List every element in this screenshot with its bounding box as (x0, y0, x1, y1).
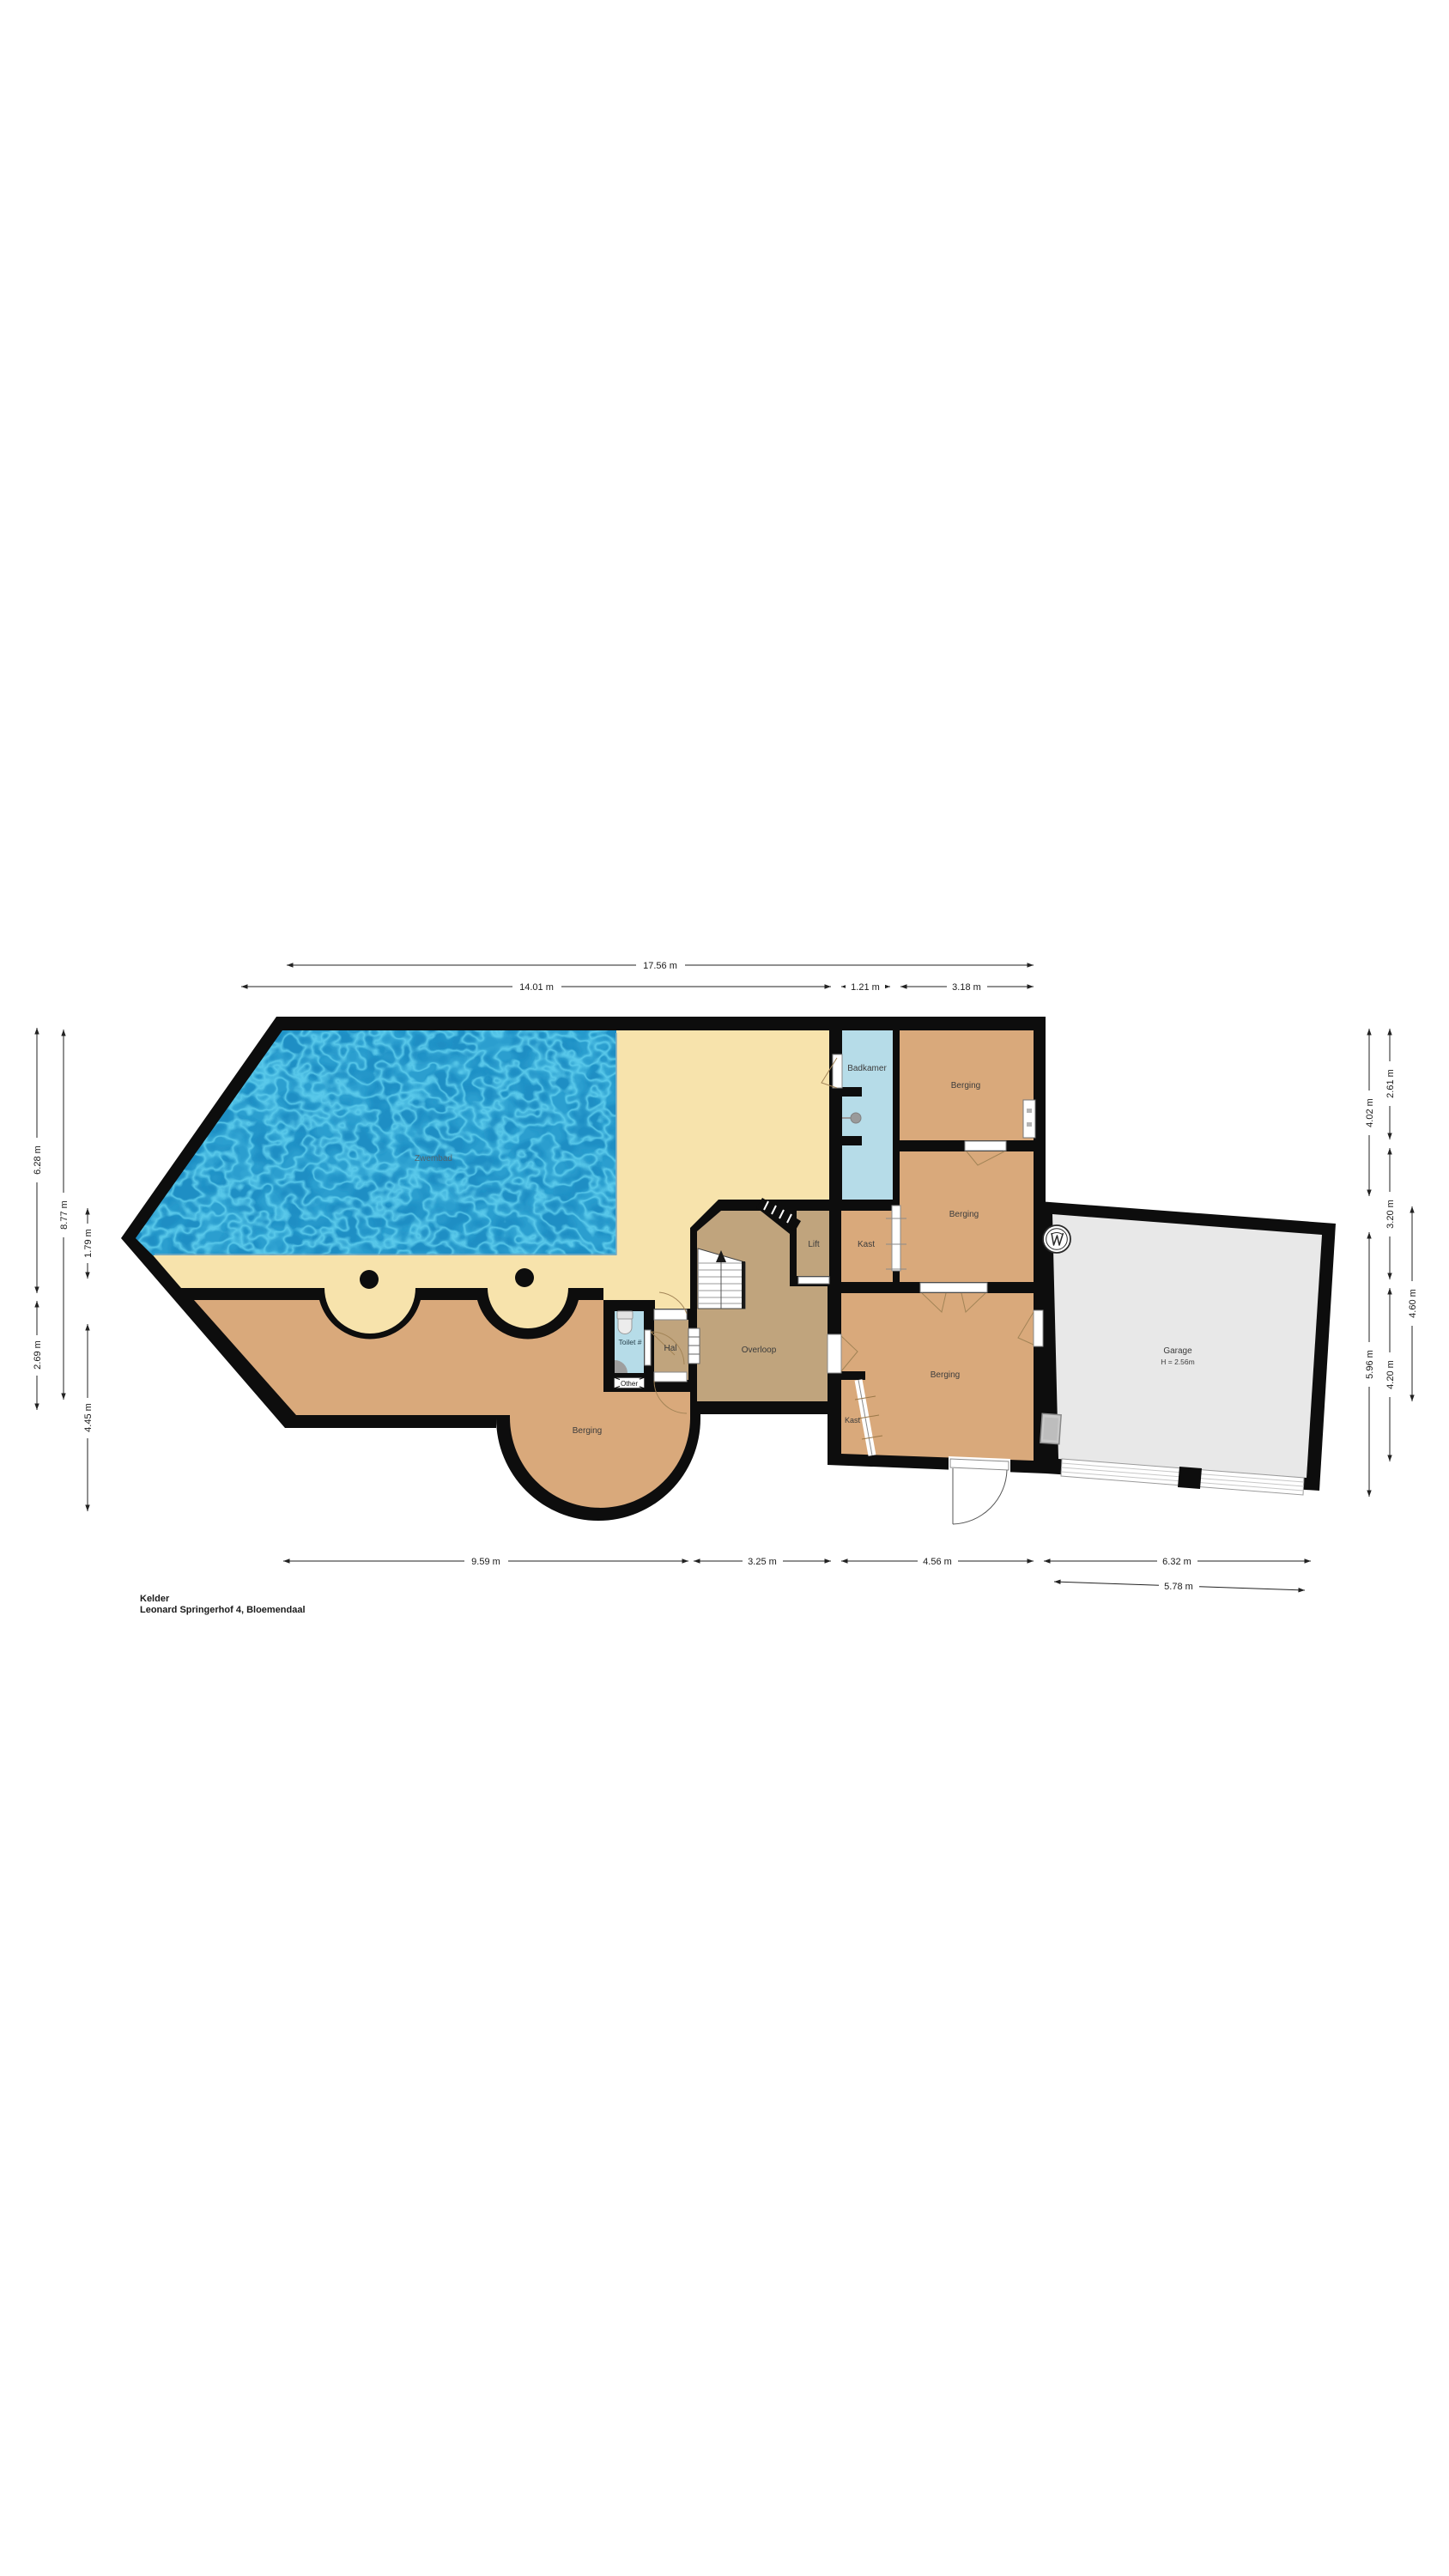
svg-text:4.20 m: 4.20 m (1385, 1360, 1396, 1389)
svg-text:6.32 m: 6.32 m (1162, 1557, 1191, 1567)
svg-text:Kast: Kast (845, 1416, 861, 1425)
svg-text:8.77 m: 8.77 m (59, 1200, 70, 1230)
svg-text:Berging: Berging (573, 1426, 602, 1436)
svg-text:4.45 m: 4.45 m (83, 1403, 94, 1432)
svg-text:9.59 m: 9.59 m (471, 1557, 500, 1567)
svg-text:Leonard Springerhof 4, Bloemen: Leonard Springerhof 4, Bloemendaal (140, 1605, 306, 1615)
svg-text:Berging: Berging (931, 1370, 960, 1380)
svg-text:Badkamer: Badkamer (847, 1064, 887, 1073)
svg-text:Other: Other (621, 1380, 638, 1388)
svg-text:3.18 m: 3.18 m (952, 982, 981, 993)
svg-text:Garage: Garage (1163, 1346, 1192, 1356)
svg-text:Lift: Lift (808, 1240, 820, 1249)
svg-text:Hal: Hal (664, 1344, 676, 1353)
svg-text:Zwembad: Zwembad (415, 1154, 452, 1163)
svg-text:4.56 m: 4.56 m (923, 1557, 952, 1567)
svg-text:6.28 m: 6.28 m (33, 1145, 43, 1175)
svg-text:3.25 m: 3.25 m (748, 1557, 777, 1567)
svg-text:5.78 m: 5.78 m (1164, 1582, 1193, 1592)
svg-text:Overloop: Overloop (742, 1346, 777, 1355)
svg-text:1.79 m: 1.79 m (83, 1229, 94, 1258)
svg-text:Toilet #: Toilet # (619, 1338, 642, 1346)
svg-text:Berging: Berging (951, 1081, 980, 1091)
svg-text:17.56 m: 17.56 m (643, 961, 677, 971)
svg-text:Kast: Kast (858, 1240, 875, 1249)
svg-text:4.02 m: 4.02 m (1365, 1098, 1375, 1127)
svg-text:4.60 m: 4.60 m (1408, 1289, 1418, 1318)
svg-text:2.69 m: 2.69 m (33, 1340, 43, 1370)
svg-text:1.21 m: 1.21 m (851, 982, 880, 993)
svg-text:2.61 m: 2.61 m (1385, 1069, 1396, 1098)
svg-text:3.20 m: 3.20 m (1385, 1200, 1396, 1229)
svg-text:H = 2.56m: H = 2.56m (1161, 1358, 1194, 1366)
svg-text:Kelder: Kelder (140, 1594, 170, 1604)
svg-text:Berging: Berging (949, 1210, 979, 1219)
svg-text:14.01 m: 14.01 m (519, 982, 554, 993)
svg-text:5.96 m: 5.96 m (1365, 1350, 1375, 1379)
